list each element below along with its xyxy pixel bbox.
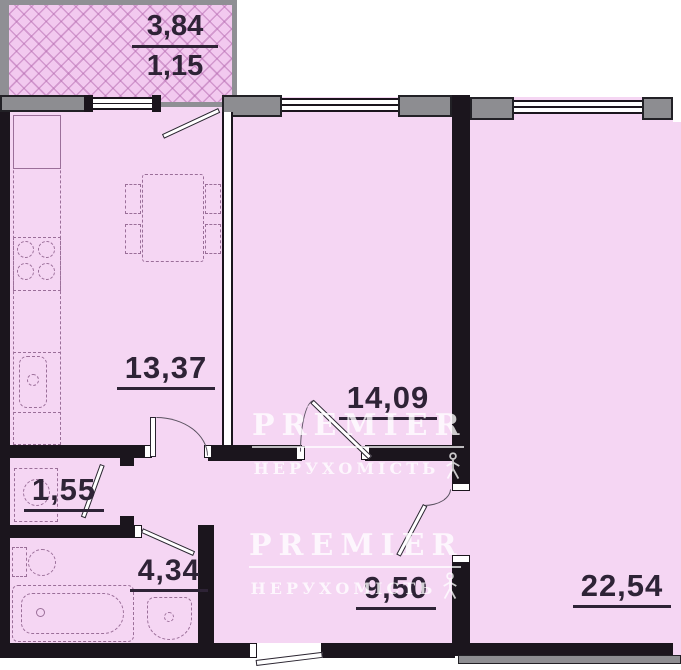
balcony-area-label: 3,84 1,15: [132, 10, 218, 83]
pier-top-left: [0, 95, 92, 112]
wc-area-label: 1,55: [14, 472, 114, 512]
stove-burner: [38, 263, 55, 280]
stove-burner: [38, 241, 55, 258]
window-balcony: [93, 97, 152, 110]
watermark-premier-2: PREMIER НЕРУХОМІСТЬ: [249, 528, 461, 605]
watermark-subtitle: НЕРУХОМІСТЬ: [254, 459, 440, 478]
counter-divider: [13, 412, 61, 413]
balcony-area-denominator: 1,15: [132, 48, 218, 83]
room-right-area-label: 22,54: [566, 568, 678, 608]
kitchen-sink-drain: [27, 374, 39, 386]
window-jamb: [152, 95, 161, 112]
wall-bottom-left: [0, 643, 256, 658]
door-jamb: [249, 643, 257, 658]
premier-figure-icon: [441, 571, 459, 605]
dining-table: [142, 174, 204, 262]
window-room-right: [514, 100, 642, 114]
floor-plan: 3,84 1,15 13,37 14,09 22,54 1,55 4,34 9,…: [0, 0, 681, 670]
window-jamb: [84, 95, 93, 112]
stove-burner: [17, 241, 34, 258]
watermark-premier-1: PREMIER НЕРУХОМІСТЬ: [252, 408, 464, 485]
outside-top: [237, 0, 673, 97]
window-room-middle: [282, 98, 398, 112]
pier-right-left: [470, 97, 514, 120]
balcony-area-numerator: 3,84: [132, 10, 218, 48]
fridge: [13, 115, 61, 169]
stove-burner: [17, 263, 34, 280]
wall-wc-right-top: [120, 456, 134, 466]
toilet-bowl: [28, 549, 56, 576]
chair: [125, 184, 141, 214]
chair: [205, 184, 221, 214]
bathtub-drain: [36, 608, 45, 617]
bathroom-area-label: 4,34: [124, 554, 214, 592]
wall-kitchen-room-divider: [222, 112, 233, 447]
bathroom-sink-drain: [164, 612, 174, 622]
outside-top-right: [673, 0, 681, 122]
pier-mid-right: [398, 95, 452, 117]
wall-bathroom-top: [10, 525, 140, 538]
watermark-subtitle: НЕРУХОМІСТЬ: [251, 579, 437, 598]
counter-divider: [13, 352, 61, 353]
chair: [205, 224, 221, 254]
wall-left-outer: [0, 95, 10, 658]
toilet-tank: [12, 547, 27, 577]
kitchen-area-label: 13,37: [112, 350, 220, 390]
wall-bottom-mid: [322, 643, 455, 658]
chair: [125, 224, 141, 254]
watermark-brand: PREMIER: [249, 528, 461, 568]
ledge-bottom-right: [458, 655, 681, 664]
watermark-brand: PREMIER: [252, 408, 464, 448]
pier-right-right: [642, 97, 673, 120]
premier-figure-icon: [444, 451, 462, 485]
